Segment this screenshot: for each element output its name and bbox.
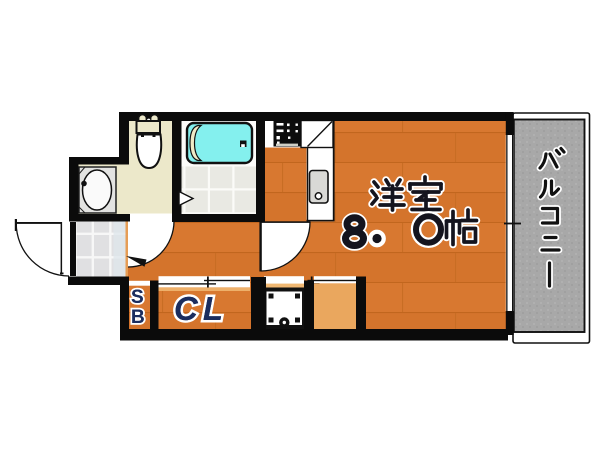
- svg-text:S: S: [131, 287, 144, 308]
- svg-text:CL: CL: [174, 290, 228, 327]
- svg-text:B: B: [131, 307, 145, 328]
